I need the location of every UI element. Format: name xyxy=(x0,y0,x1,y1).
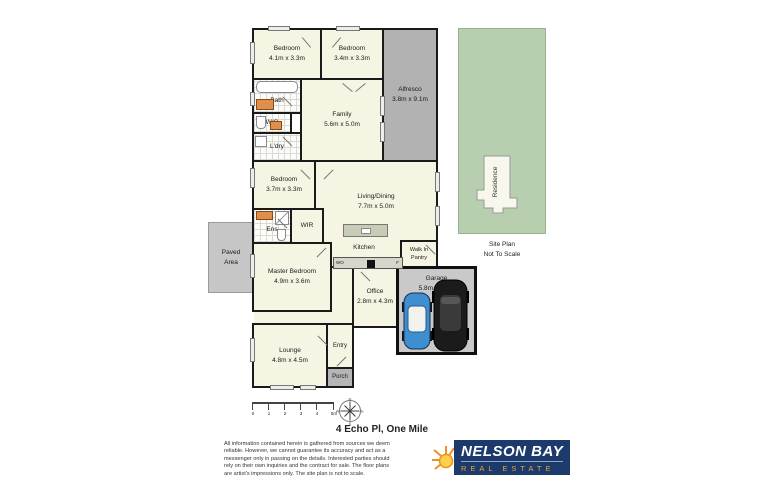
logo-tagline: REAL ESTATE xyxy=(461,461,563,473)
car-blue xyxy=(402,291,432,351)
page-title: 4 Echo Pl, One Mile xyxy=(292,424,472,435)
kitchen-sink xyxy=(361,228,371,234)
compass-e: E xyxy=(361,409,364,414)
window xyxy=(435,206,440,226)
site-plan-residence: Residence xyxy=(470,150,530,220)
wall-oven-label: WO xyxy=(336,260,344,265)
floorplan-page: Paved Area Living/Dining 7.7m x 5.0m Bed… xyxy=(0,0,765,496)
ensuite-toilet xyxy=(277,229,286,241)
fridge-label: F xyxy=(396,260,399,265)
room-dims: 2.8m x 4.3m xyxy=(355,297,395,307)
compass-n: N xyxy=(349,397,352,402)
window xyxy=(250,92,255,106)
room-alfresco: Alfresco 3.8m x 9.1m xyxy=(382,28,438,162)
site-plan-caption-line2: Not To Scale xyxy=(457,250,547,260)
bathtub xyxy=(256,81,298,93)
room-dims: 3.7m x 3.3m xyxy=(266,185,302,195)
window xyxy=(268,26,290,31)
car-black xyxy=(432,278,469,353)
scale-label: 4 xyxy=(316,411,319,416)
window xyxy=(250,254,255,278)
room-label: Alfresco xyxy=(392,85,428,95)
window xyxy=(435,172,440,192)
window xyxy=(250,42,255,64)
window xyxy=(380,122,385,142)
compass-w: W xyxy=(336,409,340,414)
room-bedroom-mid: Bedroom 3.7m x 3.3m xyxy=(252,160,316,210)
room-walk-in-pantry: Walk In Pantry xyxy=(400,240,438,268)
compass-icon: N E S W xyxy=(336,397,364,425)
toilet xyxy=(256,116,266,129)
room-dims: 3.4m x 3.3m xyxy=(334,54,370,64)
room-lounge: Lounge 4.8m x 4.5m xyxy=(252,323,328,388)
room-label: Bedroom xyxy=(334,44,370,54)
site-plan-caption: Site Plan Not To Scale xyxy=(457,240,547,260)
wc-vanity xyxy=(270,121,282,130)
window xyxy=(250,338,255,362)
site-plan-caption-line1: Site Plan xyxy=(457,240,547,250)
room-wir: WIR xyxy=(290,208,324,244)
kitchen-label: Kitchen xyxy=(340,243,388,252)
sun-icon xyxy=(430,442,454,474)
room-bedroom-top-left: Bedroom 4.1m x 3.3m xyxy=(252,28,322,80)
room-label: Family xyxy=(324,110,360,120)
room-label: Living/Dining xyxy=(357,192,394,202)
laundry-trough xyxy=(255,136,267,147)
scale-bar: 0 1 2 3 4 5m xyxy=(252,402,334,418)
room-label: Paved Area xyxy=(215,248,247,268)
hallway xyxy=(254,312,352,323)
room-family: Family 5.6m x 5.0m xyxy=(300,78,384,162)
disclaimer-text: All information contained herein is gath… xyxy=(224,441,394,478)
room-porch: Porch xyxy=(326,367,354,388)
room-bedroom-top-right: Bedroom 3.4m x 3.3m xyxy=(320,28,384,80)
scale-label: 3 xyxy=(300,411,303,416)
room-label: Office xyxy=(355,287,395,297)
room-label: Bedroom xyxy=(269,44,305,54)
room-label: Bedroom xyxy=(266,175,302,185)
room-dims: 3.8m x 9.1m xyxy=(392,95,428,105)
kitchen-island xyxy=(343,224,388,237)
room-dims: 4.8m x 4.5m xyxy=(272,356,308,366)
scale-bar-line xyxy=(252,402,334,404)
room-label: Lounge xyxy=(272,346,308,356)
kitchen-counter: WO F xyxy=(333,257,403,269)
scale-label: 1 xyxy=(268,411,271,416)
scale-label: 0 xyxy=(252,411,255,416)
window xyxy=(300,385,316,390)
bath-vanity xyxy=(256,99,274,110)
room-label: Master Bedroom xyxy=(267,267,317,277)
ensuite-vanity xyxy=(256,211,273,220)
room-label: L'dry xyxy=(270,142,284,152)
room-paved-area: Paved Area xyxy=(208,222,254,293)
room-dims: 4.1m x 3.3m xyxy=(269,54,305,64)
cooktop xyxy=(367,260,375,268)
scale-label: 2 xyxy=(284,411,287,416)
room-dims: 5.6m x 5.0m xyxy=(324,120,360,130)
room-label: Entry xyxy=(333,342,347,351)
window xyxy=(250,168,255,188)
room-label: Porch xyxy=(332,373,348,382)
room-dims: 4.9m x 3.6m xyxy=(267,277,317,287)
window xyxy=(270,385,294,390)
residence-label: Residence xyxy=(492,166,499,197)
room-dims: 7.7m x 5.0m xyxy=(357,202,394,212)
room-label: WIR xyxy=(301,221,314,231)
room-label: Ens xyxy=(266,225,277,235)
agency-logo: NELSON BAY REAL ESTATE xyxy=(430,440,570,475)
window xyxy=(380,96,385,116)
logo-panel: NELSON BAY REAL ESTATE xyxy=(454,440,570,475)
window xyxy=(336,26,360,31)
room-office: Office 2.8m x 4.3m xyxy=(352,266,398,328)
logo-name: NELSON BAY xyxy=(461,443,563,460)
